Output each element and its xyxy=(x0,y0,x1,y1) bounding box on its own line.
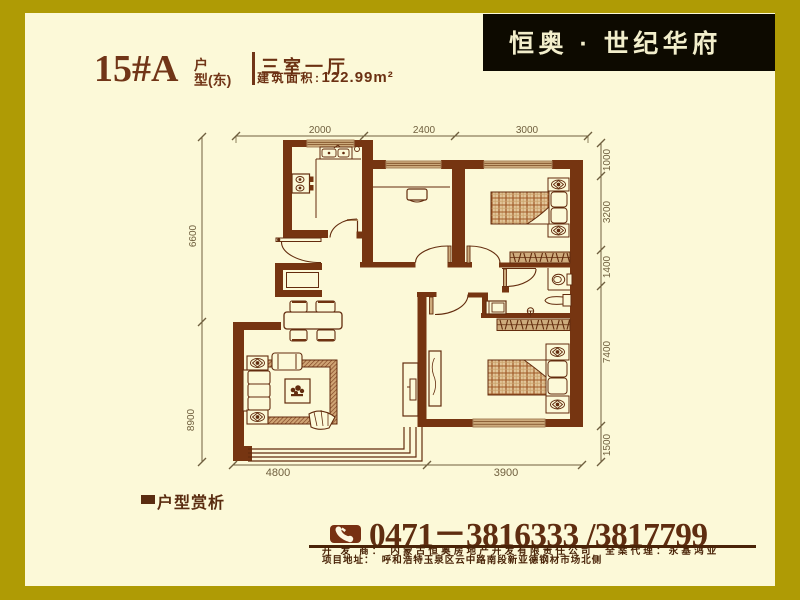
svg-text:3900: 3900 xyxy=(494,467,518,479)
svg-text:2000: 2000 xyxy=(309,125,332,136)
svg-text:3200: 3200 xyxy=(602,200,613,223)
svg-text:2400: 2400 xyxy=(413,125,436,136)
svg-text:1400: 1400 xyxy=(602,255,613,278)
svg-text:6600: 6600 xyxy=(188,224,199,247)
svg-text:8900: 8900 xyxy=(186,408,197,431)
svg-text:1500: 1500 xyxy=(602,433,613,456)
svg-text:4800: 4800 xyxy=(266,467,290,479)
svg-text:7400: 7400 xyxy=(602,340,613,363)
svg-text:1000: 1000 xyxy=(602,148,613,171)
svg-text:3000: 3000 xyxy=(516,125,539,136)
